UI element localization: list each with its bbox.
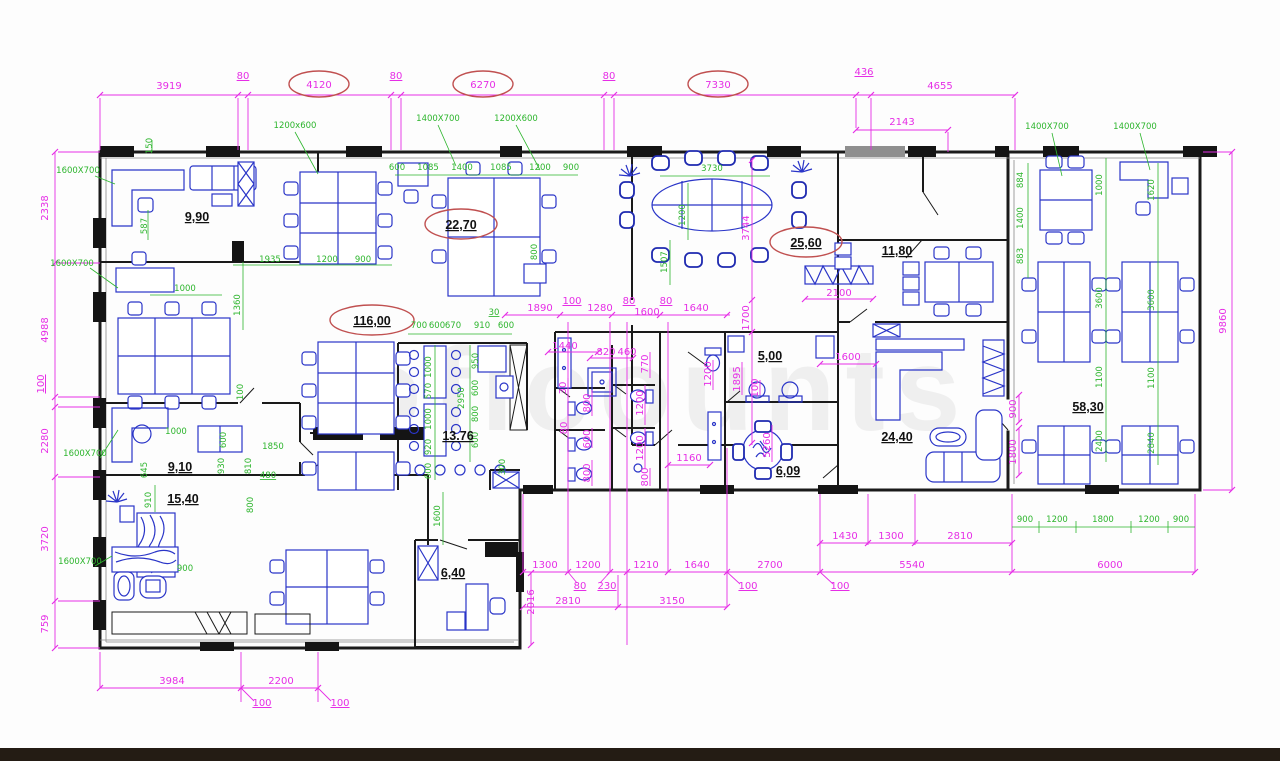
green-dim-label: 1000	[1095, 174, 1105, 196]
room-label: 11,80	[882, 244, 913, 258]
dim-label: 1640	[684, 560, 709, 571]
dim-label: 759	[40, 614, 51, 633]
green-dim-label: 1200	[1046, 515, 1068, 525]
size-label: 1400X700	[1025, 122, 1069, 132]
green-dim-label: 670	[445, 321, 461, 331]
dim-label: 80	[574, 581, 587, 592]
size-label: 1400X700	[416, 114, 460, 124]
green-dim-label: 1000	[165, 427, 187, 437]
green-dim-label: 600	[429, 321, 445, 331]
green-dim-label: 2950	[457, 387, 467, 409]
green-dim-label: 600	[389, 163, 405, 173]
green-dim-label: 1935	[259, 255, 281, 265]
green-dim-label: 920	[424, 439, 434, 455]
green-dim-label: 1200	[678, 204, 688, 226]
plant-icon	[791, 160, 812, 172]
green-dim-label: 600	[498, 321, 514, 331]
green-dim-label: 1600	[433, 505, 443, 527]
dim-label: 800	[640, 467, 651, 486]
size-label: 1600X700	[56, 166, 100, 176]
green-dim-label: 910	[474, 321, 490, 331]
dim-label: 80	[660, 296, 673, 307]
green-dim-label: 100	[236, 384, 246, 400]
dim-label: 1210	[633, 560, 658, 571]
dim-label: 2280	[40, 428, 51, 453]
office-2270-furniture	[398, 162, 556, 296]
dim-label: 1200	[575, 560, 600, 571]
green-dim-label: 1800	[1092, 515, 1114, 525]
green-dim-label: 2400	[1095, 430, 1105, 452]
dim-label: 2100	[826, 288, 851, 299]
green-dim-label: 1200	[316, 255, 338, 265]
green-dim-label: 700	[411, 321, 427, 331]
green-dim-label: 1000	[424, 356, 434, 378]
dim-label: 2700	[757, 560, 782, 571]
dim-label: 436	[854, 67, 873, 78]
dim-label: 1200	[635, 390, 646, 415]
dim-label: 1440	[552, 341, 577, 352]
room-label: 24,40	[881, 430, 912, 444]
dim-label: 1300	[878, 531, 903, 542]
green-dim-label: 1100	[1147, 367, 1157, 389]
dim-label: 100	[750, 378, 761, 397]
room-label: 22,70	[445, 218, 476, 232]
green-dim-label: 3730	[701, 164, 723, 174]
dim-label: 1300	[532, 560, 557, 571]
dim-label: 80	[623, 296, 636, 307]
room-label: 6,40	[441, 566, 465, 580]
dim-label: 460	[617, 347, 636, 358]
room-label: 6,09	[776, 464, 800, 478]
green-dim-label: 1850	[262, 442, 284, 452]
dim-label: 770	[640, 354, 651, 373]
dim-label: 1895	[732, 366, 743, 391]
dim-label: 100	[562, 296, 581, 307]
green-dim-label: 1000	[424, 408, 434, 430]
dim-label: 1430	[832, 531, 857, 542]
green-dim-label: 950	[471, 353, 481, 369]
bottom-dark-bar	[0, 748, 1280, 761]
dim-label: 2810	[947, 531, 972, 542]
room-label: 15,40	[167, 492, 198, 506]
green-dim-label: 1400	[451, 163, 473, 173]
green-dim-label: 480	[260, 471, 276, 481]
dim-label: 1640	[683, 303, 708, 314]
dim-label: 230	[597, 581, 616, 592]
dim-label: 5260	[762, 432, 773, 457]
dim-label: 900	[1008, 399, 1019, 418]
size-label: 1200x600	[274, 121, 317, 131]
dim-label: 1800	[1008, 439, 1019, 464]
dim-label: 3919	[156, 81, 181, 92]
dim-label: 600	[582, 429, 593, 448]
dim-label: 30	[558, 382, 569, 395]
sink	[496, 376, 513, 398]
gray-wall-segment	[845, 146, 905, 157]
green-dim-label: 1360	[233, 294, 243, 316]
green-dim-label: 587	[140, 218, 150, 234]
room-label: 9,90	[185, 210, 209, 224]
green-dim-label: 1100	[1095, 366, 1105, 388]
room-label: 58,30	[1072, 400, 1103, 414]
room-label: 13.76	[442, 429, 473, 443]
green-dim-label: 600	[471, 380, 481, 396]
size-label: 1200X600	[494, 114, 538, 124]
dim-label: 1280	[587, 303, 612, 314]
dim-label: 1890	[527, 303, 552, 314]
room-label: 25,60	[790, 236, 821, 250]
fridge	[478, 346, 506, 372]
room-label: 5,00	[758, 349, 782, 363]
green-dim-label: 1400	[1016, 207, 1026, 229]
dim-label: 1600	[835, 352, 860, 363]
dim-label: 9860	[1218, 308, 1229, 333]
green-dim-label: 1085	[490, 163, 512, 173]
green-dim-label: 884	[1016, 172, 1026, 188]
size-label: 1600X700	[63, 449, 107, 459]
plant-icon	[619, 164, 640, 176]
green-dim-label: 1200	[529, 163, 551, 173]
dim-label: 80	[559, 422, 570, 435]
green-dim-label: 1000	[174, 284, 196, 294]
size-label: 1600X700	[58, 557, 102, 567]
size-label: 1400X700	[1113, 122, 1157, 132]
wing-furniture	[1022, 156, 1194, 484]
dim-label: 4988	[40, 317, 51, 342]
dim-label: 800	[582, 393, 593, 412]
room-label: 9,10	[168, 460, 192, 474]
dim-label: 100	[738, 581, 757, 592]
green-dim-label: 570	[424, 383, 434, 399]
green-dim-label: 900	[563, 163, 579, 173]
green-dim-label: 800	[530, 244, 540, 260]
green-dim-label: 883	[1016, 248, 1026, 264]
dim-label: 80	[390, 71, 403, 82]
desk-cluster	[284, 172, 392, 264]
green-dim-label: 3600	[1095, 287, 1105, 309]
dim-label: 1200	[703, 361, 714, 386]
dim-label: 2338	[40, 195, 51, 220]
green-dim-label: 1200	[1138, 515, 1160, 525]
dim-label: 1200	[635, 435, 646, 460]
dim-label: 80	[237, 71, 250, 82]
dim-label: 2143	[889, 117, 914, 128]
room-640-furniture	[418, 546, 505, 630]
vanity	[708, 412, 721, 460]
dim-label: 5540	[899, 560, 924, 571]
dim-label: 3150	[659, 596, 684, 607]
green-dim-label: 900	[177, 564, 193, 574]
desk-cluster	[302, 342, 410, 434]
floorplan-canvas: oficounts	[0, 0, 1280, 761]
dim-label: 3720	[40, 526, 51, 551]
green-dim-label: 3600	[1147, 289, 1157, 311]
plant-icon	[106, 490, 127, 502]
dim-label: 3744	[741, 215, 752, 240]
green-dim-label: 1620	[1147, 179, 1157, 201]
green-dim-label: 600	[219, 432, 229, 448]
dim-label: 1160	[676, 453, 701, 464]
room-label: 116,00	[353, 314, 391, 328]
green-dim-label: 300	[498, 459, 508, 475]
dim-label: 3984	[159, 676, 184, 687]
dim-label: 2200	[268, 676, 293, 687]
dim-label: 100	[830, 581, 849, 592]
green-dim-label: 2840	[1147, 432, 1157, 454]
office-left-furniture	[116, 252, 230, 409]
dim-label: 6000	[1097, 560, 1122, 571]
dim-label: 100	[330, 698, 349, 709]
corridor-cabinets	[112, 612, 310, 634]
size-label: 1600X700	[50, 259, 94, 269]
green-dim-label: 600	[424, 463, 434, 479]
green-dim-label: 900	[1017, 515, 1033, 525]
dim-label: 1700	[741, 305, 752, 330]
green-dim-label: 800	[246, 497, 256, 513]
dim-label: 7330	[705, 80, 730, 91]
dim-label: 80	[603, 71, 616, 82]
wardrobe	[238, 162, 254, 206]
green-dim-label: 900	[355, 255, 371, 265]
armchair	[140, 576, 166, 598]
dim-label: 4120	[306, 80, 331, 91]
green-dim-label: 930	[217, 458, 227, 474]
green-dim-label: 900	[1173, 515, 1189, 525]
dim-label: 2810	[555, 596, 580, 607]
desk-cluster	[270, 550, 384, 624]
dim-label: 1600	[634, 307, 659, 318]
dim-label: 100	[36, 374, 47, 393]
dim-label: 4655	[927, 81, 952, 92]
green-dim-label: 910	[144, 492, 154, 508]
floor-plan-page: oficounts	[0, 0, 1280, 761]
dim-label: 820	[596, 347, 615, 358]
green-dim-label: 150	[145, 138, 155, 154]
green-dim-label: 645	[140, 462, 150, 478]
dim-label: 6270	[470, 80, 495, 91]
green-dim-label: 810	[244, 458, 254, 474]
green-dim-label: 1085	[417, 163, 439, 173]
dim-label: 800	[582, 463, 593, 482]
dim-label: 100	[252, 698, 271, 709]
green-dim-label: 30	[489, 308, 500, 318]
dim-label: 2016	[526, 589, 537, 614]
green-dim-label: 1507	[660, 251, 670, 273]
desk-cluster	[302, 452, 410, 490]
green-dim-label: 800	[471, 406, 481, 422]
room-1540-furniture	[112, 506, 178, 600]
